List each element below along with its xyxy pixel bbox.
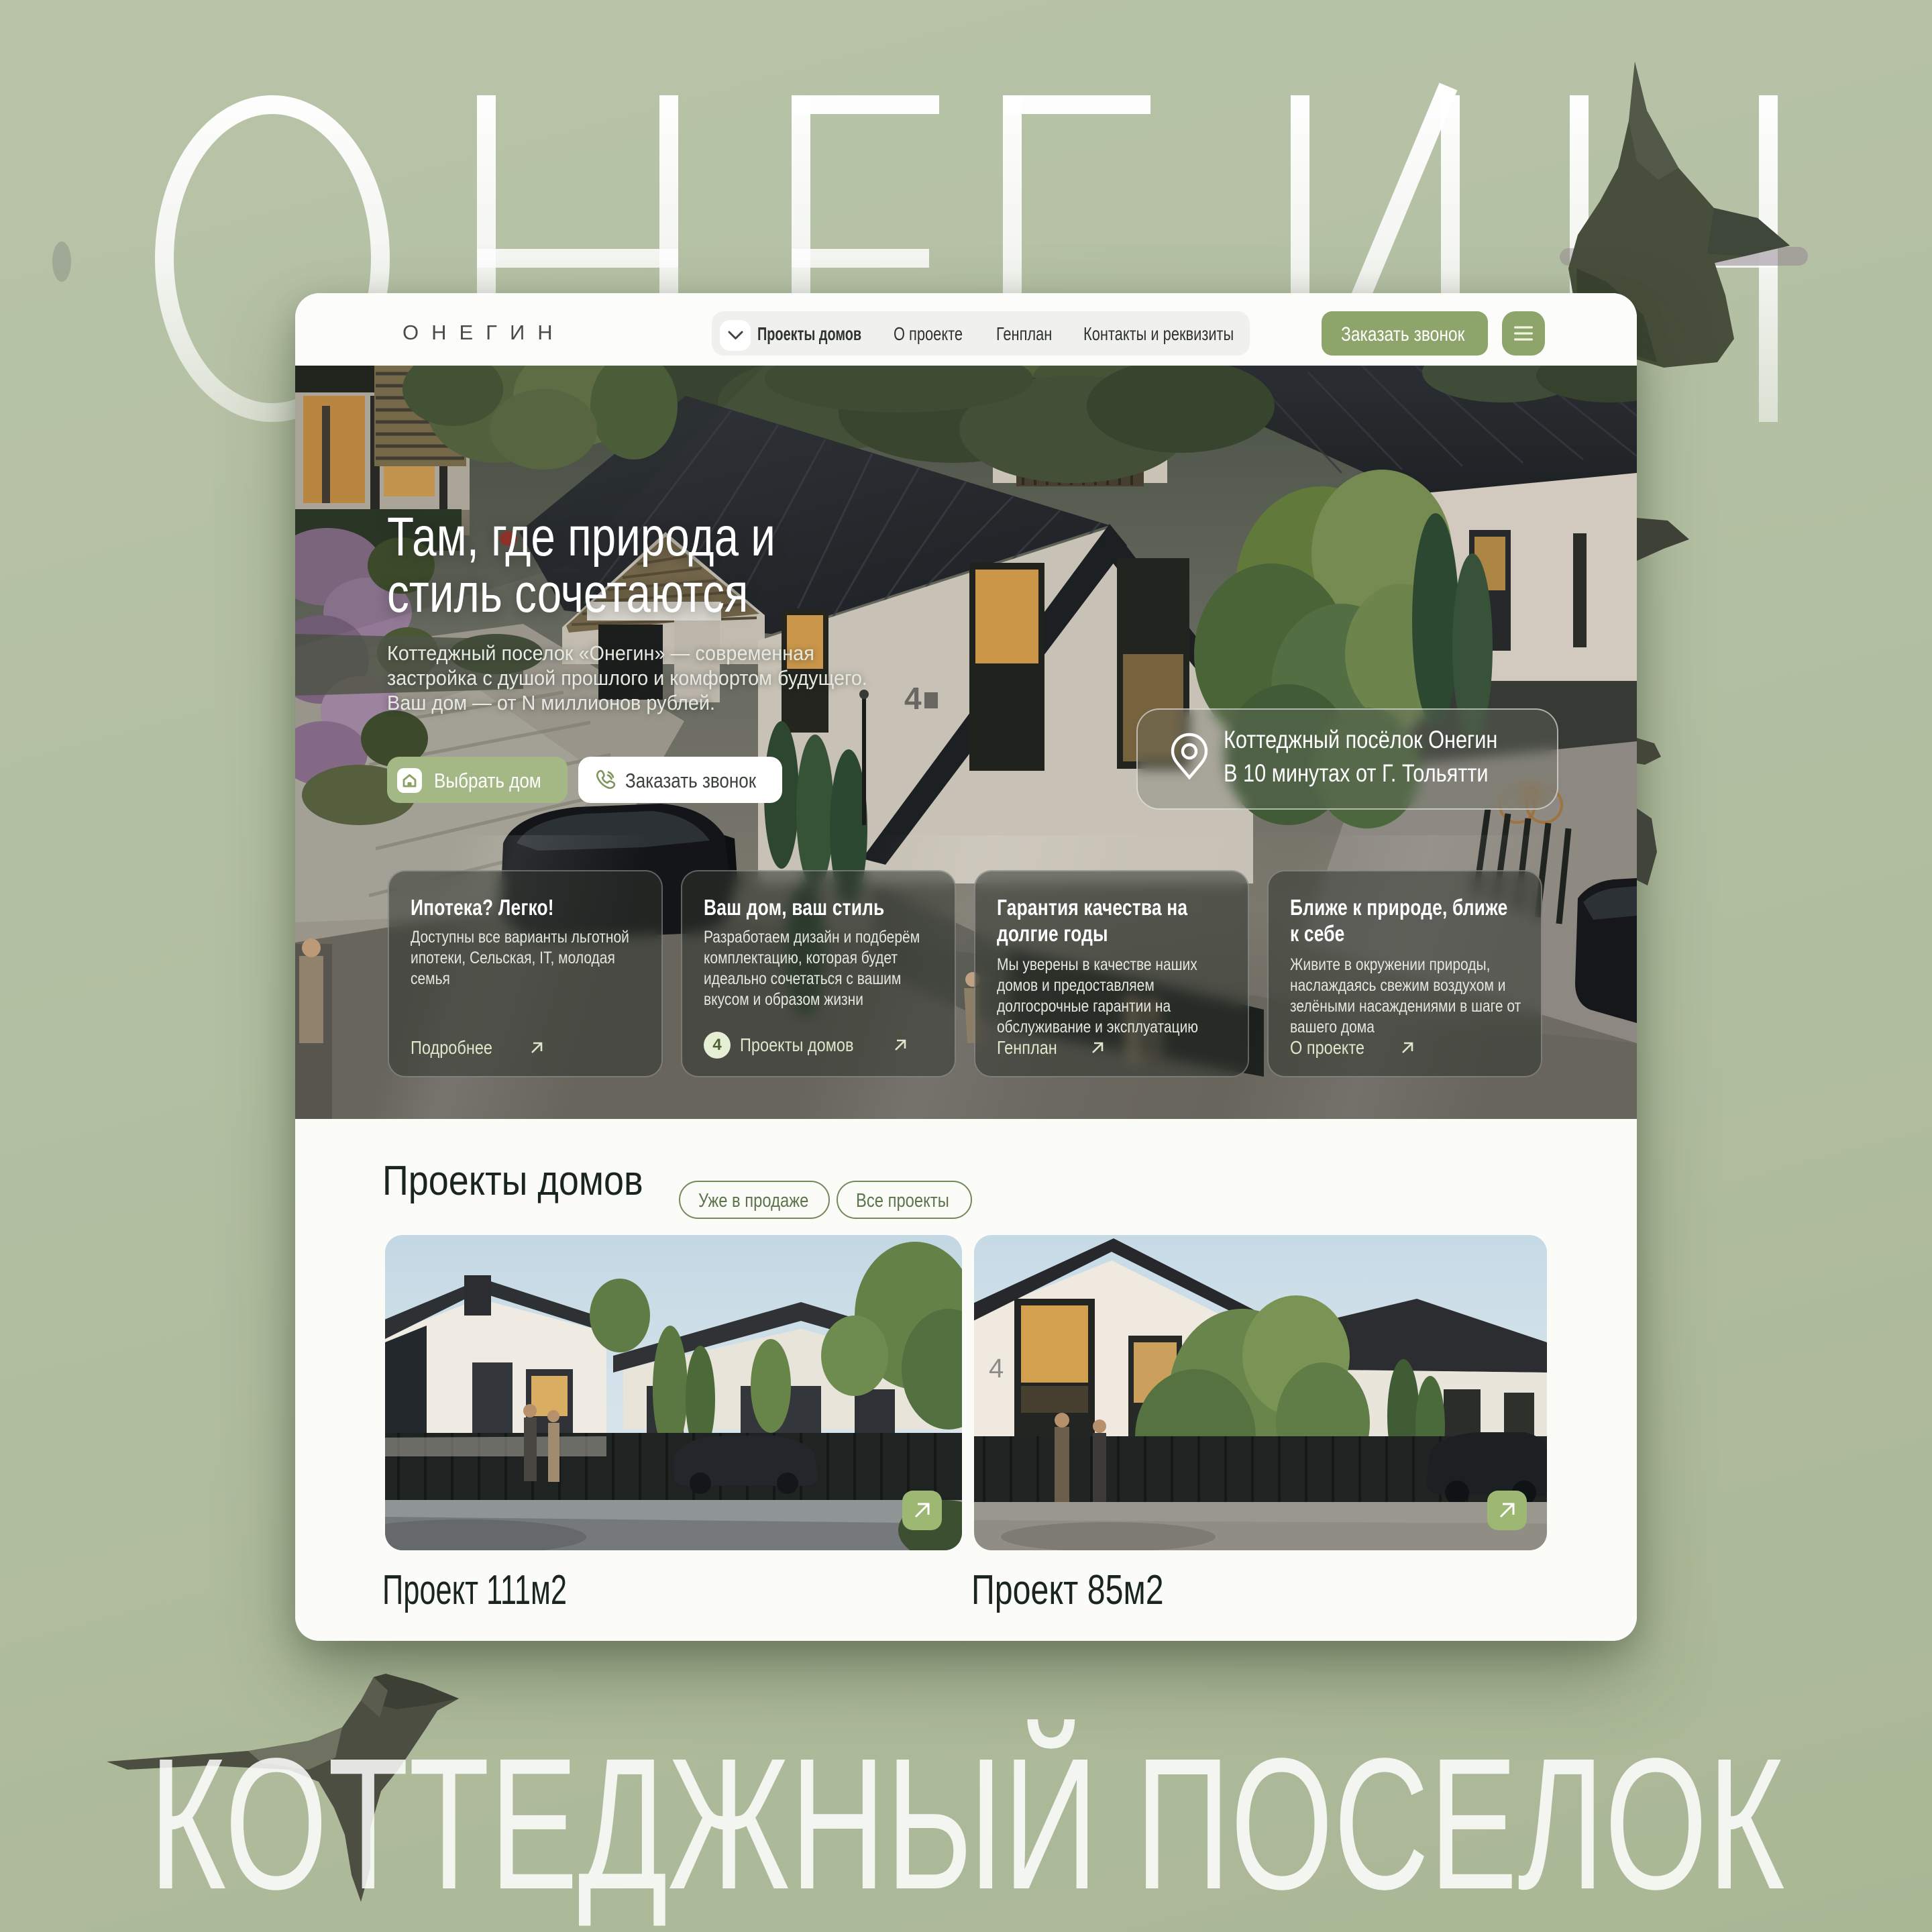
svg-text:4: 4 xyxy=(989,1354,1004,1383)
